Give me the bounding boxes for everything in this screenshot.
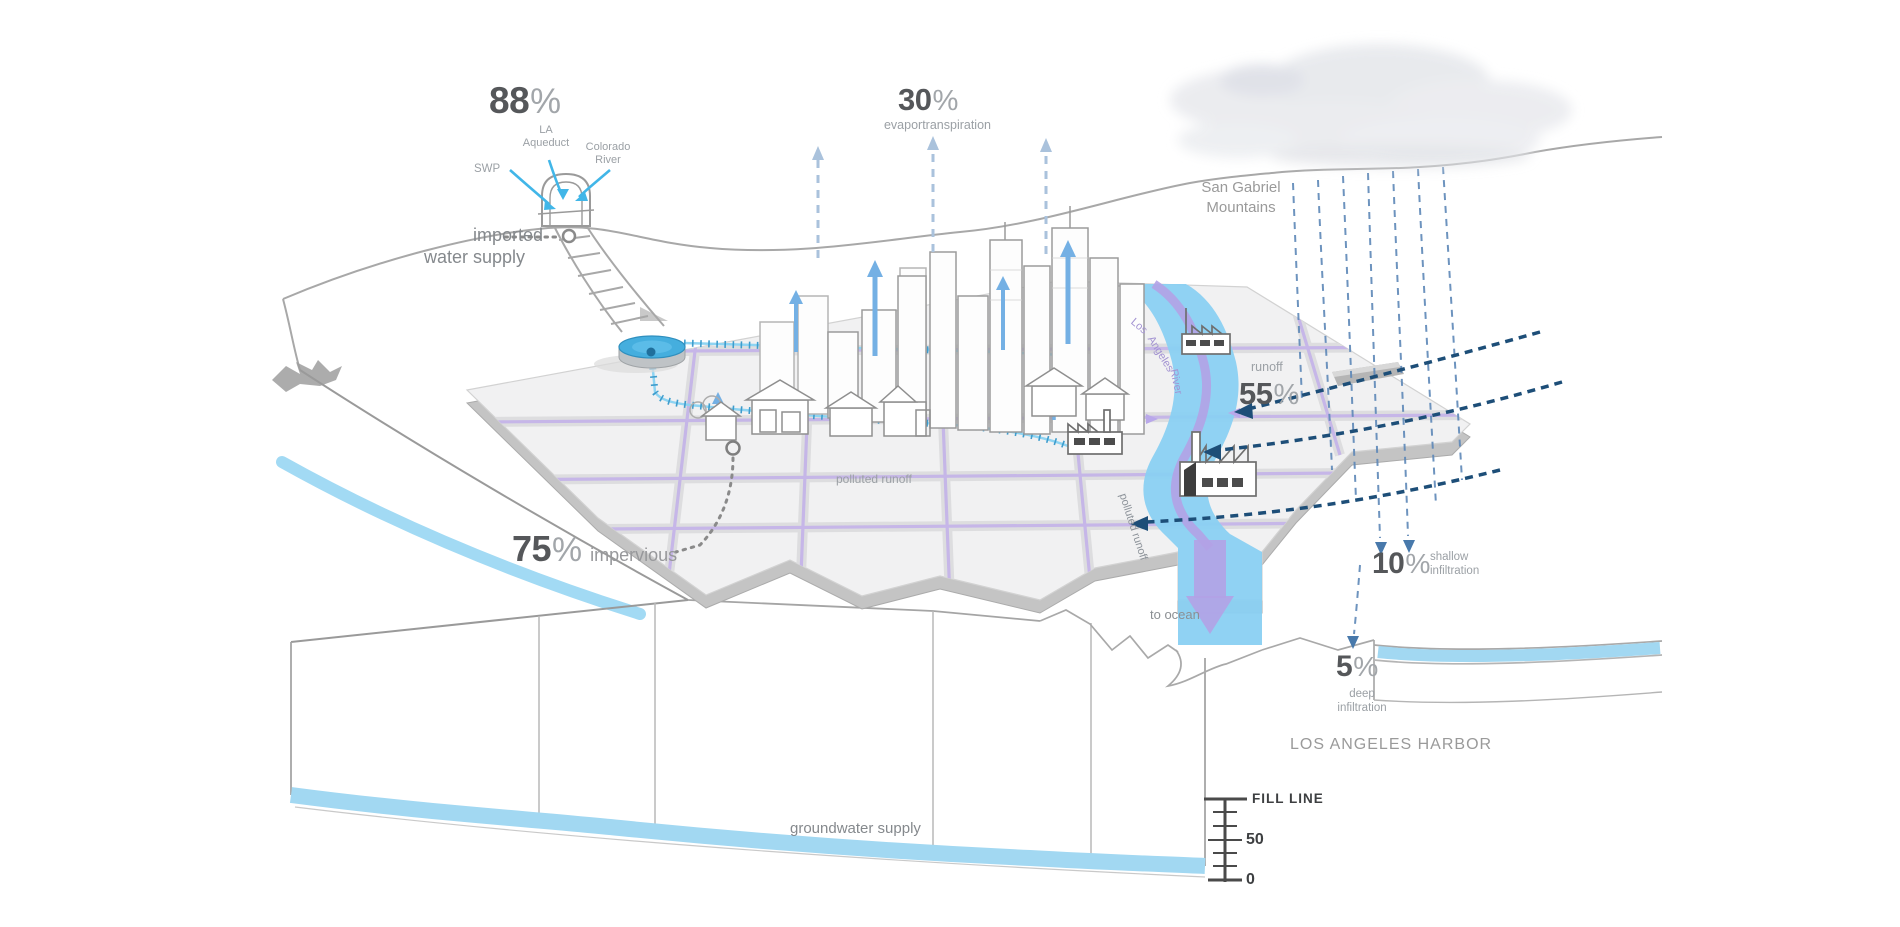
gauge-0-label: 0 bbox=[1246, 871, 1255, 890]
la-aqueduct-label: LAAqueduct bbox=[514, 124, 578, 150]
groundwater-slab bbox=[291, 600, 1205, 877]
swp-label: SWP bbox=[474, 163, 500, 177]
san-gabriel-mountains-label: San GabrielMountains bbox=[1178, 178, 1304, 219]
fill-line-gauge bbox=[1204, 799, 1247, 882]
diagram-canvas bbox=[0, 0, 1900, 927]
la-water-cycle-diagram: 88% SWP LAAqueduct ColoradoRiver importe… bbox=[0, 0, 1900, 927]
to-ocean-label: to ocean bbox=[1150, 607, 1200, 622]
impervious-percent: 75%impervious bbox=[512, 531, 677, 568]
shallow-infiltration-label: shallowinfiltration bbox=[1430, 551, 1479, 578]
evapotranspiration-percent: 30% bbox=[898, 84, 958, 116]
deep-infiltration-label: deepinfiltration bbox=[1312, 688, 1412, 715]
colorado-river-label: ColoradoRiver bbox=[577, 141, 639, 167]
reservoir-tank bbox=[594, 336, 685, 373]
deep-infiltration-percent: 5% bbox=[1336, 652, 1378, 682]
la-harbor-label: LOS ANGELES HARBOR bbox=[1290, 736, 1492, 755]
evapotranspiration-label: evaportranspiration bbox=[845, 118, 1030, 133]
gauge-50-label: 50 bbox=[1246, 831, 1264, 850]
shallow-infiltration-percent: 10% bbox=[1372, 549, 1430, 579]
rain-cloud bbox=[1170, 44, 1572, 168]
groundwater-supply-label: groundwater supply bbox=[790, 820, 921, 838]
polluted-runoff-street-label: polluted runoff bbox=[836, 472, 912, 486]
fill-line-label: FILL LINE bbox=[1252, 791, 1324, 807]
imported-percent: 88% bbox=[489, 82, 561, 120]
hill-shadow-scribble bbox=[272, 360, 342, 392]
imported-caption-line2: water supply bbox=[424, 247, 525, 268]
runoff-label: runoff bbox=[1251, 360, 1283, 375]
imported-caption-line1: imported bbox=[453, 225, 543, 246]
runoff-percent: 55% bbox=[1239, 378, 1299, 410]
